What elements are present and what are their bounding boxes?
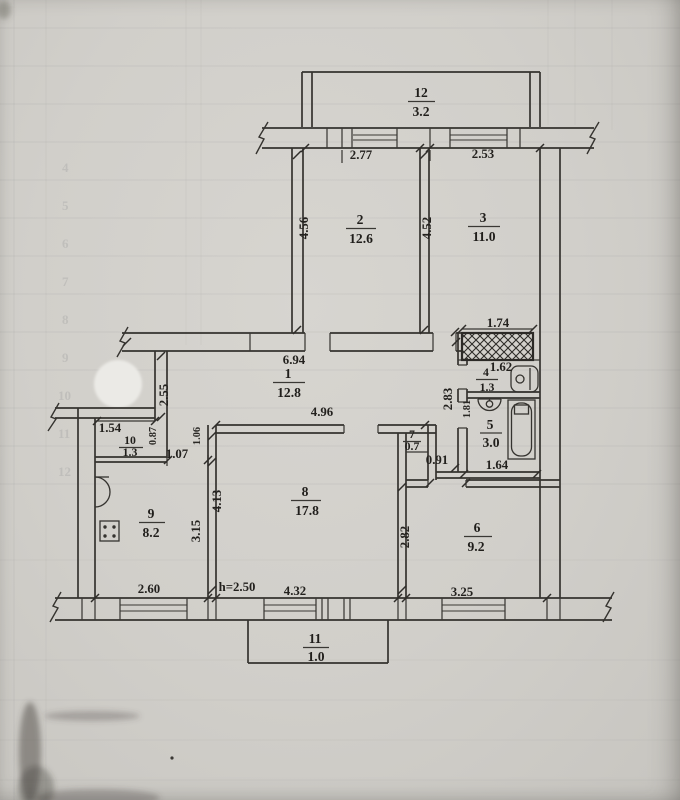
room-label-3: 3 11.0 (468, 210, 500, 244)
window-symbol (450, 135, 507, 140)
ink-speck (170, 756, 173, 759)
room-area: 1.0 (308, 649, 325, 664)
wall-break-symbol (256, 122, 268, 154)
room-label-8: 8 17.8 (291, 484, 321, 518)
wall-break-symbol (603, 592, 614, 622)
ceiling-height-note: h=2.50 (219, 580, 256, 594)
scan-smudges (0, 1, 160, 800)
erasure-spot (94, 360, 142, 408)
ghost-row-number: 12 (58, 464, 71, 479)
room-label-2: 2 12.6 (346, 212, 376, 246)
bathtub-icon (508, 400, 535, 459)
room-number: 3 (480, 210, 487, 225)
ghost-row-number: 11 (58, 426, 70, 441)
window-symbol (353, 135, 397, 140)
dim-hallway-width: 6.94 (283, 353, 306, 367)
room-number: 2 (357, 212, 364, 227)
wall-break-symbol (587, 122, 599, 154)
room-area: 12.8 (277, 385, 301, 400)
room-number: 8 (302, 484, 309, 499)
dim-bathroom-depth: 1.81 (462, 400, 473, 418)
windows (120, 135, 507, 611)
dim-room6-door: 0.91 (426, 453, 448, 467)
room-labels: 12 3.2 2 12.6 3 11.0 1 12.8 4 1.3 5 3.0 (119, 85, 502, 664)
room-area: 8.2 (143, 525, 160, 540)
room-area: 3.0 (483, 435, 500, 450)
dimension-labels: 2.77 2.53 1.74 6.94 1.62 4.96 1.54 1.07 … (99, 147, 512, 599)
window-symbol (442, 605, 505, 611)
dim-sanitary-depth: 2.83 (441, 388, 455, 410)
dim-room3-depth: 4.52 (420, 217, 434, 239)
dim-room8-width: 4.32 (284, 584, 306, 598)
room-number: 11 (309, 631, 322, 646)
room-area: 11.0 (472, 229, 495, 244)
window-symbol (120, 605, 187, 611)
dim-bathroom-width: 1.64 (486, 458, 509, 472)
room-number: 12 (414, 85, 428, 100)
dim-room10-width: 1.54 (99, 421, 122, 435)
room-label-5: 5 3.0 (480, 417, 502, 450)
dim-hall-left-depth: 2.55 (157, 384, 171, 406)
room-number: 4 (483, 365, 489, 379)
room-label-6: 6 9.2 (464, 520, 492, 554)
room-area: 9.2 (468, 539, 485, 554)
room-number: 9 (148, 506, 155, 521)
vent-shaft-hatch (462, 333, 533, 360)
room-label-7: 7 0.7 (403, 427, 421, 453)
room-area: 3.2 (413, 104, 430, 119)
dim-room9-width: 2.60 (138, 582, 160, 596)
dim-room8-depth: 4.13 (210, 490, 224, 512)
ghost-row-number: 8 (62, 312, 69, 327)
dim-room10-opening: 0.87 (148, 427, 159, 445)
dim-room8-top-width: 4.96 (311, 405, 334, 419)
room-area: 1.3 (123, 445, 138, 459)
room-area: 12.6 (349, 231, 373, 246)
room-area: 17.8 (295, 503, 319, 518)
room-label-9: 9 8.2 (139, 506, 165, 540)
wall-break-symbol (50, 592, 61, 622)
room-number: 6 (474, 520, 481, 535)
dim-shaft-width: 1.74 (487, 316, 510, 330)
dim-room8-wall-segment: 1.06 (192, 427, 203, 445)
dim-room9-depth: 3.15 (189, 520, 203, 542)
ghost-row-number: 9 (62, 350, 69, 365)
room-number: 5 (487, 417, 494, 432)
washbasin-icon (478, 399, 501, 411)
dim-room6-width: 3.25 (451, 585, 473, 599)
ghost-row-number: 7 (62, 274, 69, 289)
room-number: 1 (285, 366, 292, 381)
dim-facade-top-left: 2.77 (350, 148, 373, 162)
scanned-floor-plan-page: 4 5 6 7 8 9 10 11 12 (0, 0, 680, 800)
room-label-11: 11 1.0 (303, 631, 329, 664)
ghost-row-number: 4 (62, 160, 69, 175)
room-label-12: 12 3.2 (408, 85, 435, 119)
dim-facade-top-right: 2.53 (472, 147, 494, 161)
dim-room2-depth: 4.56 (297, 216, 311, 239)
dim-hallway-door: 1.07 (166, 447, 189, 461)
room-area: 1.3 (480, 380, 495, 394)
ghost-row-number: 10 (58, 388, 71, 403)
door-swing-icon (95, 477, 110, 507)
ghost-row-number: 6 (62, 236, 69, 251)
dim-wc-width: 1.62 (490, 360, 512, 374)
room-area: 0.7 (405, 439, 420, 453)
dim-room6-depth: 2.82 (398, 526, 412, 548)
floor-plan-scan: 4 5 6 7 8 9 10 11 12 (0, 0, 680, 800)
window-symbol (264, 605, 316, 611)
ghost-row-number: 5 (62, 198, 69, 213)
room-label-1: 1 12.8 (273, 366, 305, 400)
stove-icon (100, 521, 119, 541)
